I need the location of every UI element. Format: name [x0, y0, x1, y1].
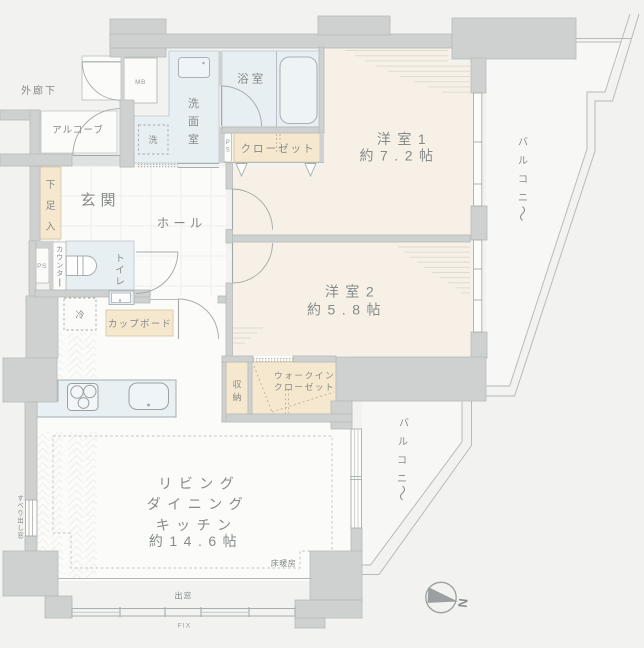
svg-text:S: S — [226, 148, 230, 154]
svg-text:し: し — [17, 524, 23, 532]
svg-text:ホール: ホール — [157, 217, 207, 231]
svg-text:PS: PS — [37, 263, 47, 270]
svg-text:玄関: 玄関 — [80, 192, 120, 209]
svg-text:出窓: 出窓 — [175, 591, 193, 601]
svg-text:納: 納 — [232, 392, 241, 403]
svg-text:クローゼット: クローゼット — [274, 381, 335, 392]
svg-text:洗: 洗 — [188, 97, 199, 110]
svg-text:下: 下 — [46, 180, 56, 191]
svg-text:約14.6帖: 約14.6帖 — [149, 533, 243, 549]
svg-text:面: 面 — [188, 116, 199, 128]
svg-text:ウ: ウ — [56, 254, 63, 262]
svg-text:洋室2: 洋室2 — [325, 284, 380, 300]
svg-text:MB: MB — [135, 79, 146, 86]
svg-text:ウォークイン: ウォークイン — [274, 371, 335, 381]
svg-text:バ: バ — [399, 418, 409, 430]
svg-text:キッチン: キッチン — [156, 517, 238, 533]
svg-text:浴室: 浴室 — [237, 72, 266, 86]
svg-text:約7.2帖: 約7.2帖 — [360, 148, 440, 164]
svg-text:P: P — [226, 140, 230, 146]
svg-text:洋室1: 洋室1 — [377, 131, 432, 147]
svg-text:外廊下: 外廊下 — [21, 84, 57, 97]
svg-text:室: 室 — [188, 132, 199, 146]
svg-text:コ: コ — [518, 175, 528, 186]
svg-text:イ: イ — [115, 265, 125, 276]
svg-text:べ: べ — [17, 502, 23, 510]
svg-text:バ: バ — [518, 137, 528, 149]
svg-text:FIX: FIX — [178, 623, 192, 630]
svg-text:足: 足 — [46, 200, 56, 212]
svg-text:床暖房: 床暖房 — [271, 558, 297, 568]
svg-text:コ: コ — [397, 456, 407, 467]
svg-text:ニ: ニ — [518, 193, 528, 204]
svg-text:N: N — [455, 598, 470, 609]
svg-text:カップボード: カップボード — [108, 319, 172, 330]
svg-text:ン: ン — [56, 263, 63, 270]
svg-text:ル: ル — [398, 437, 408, 448]
svg-text:タ: タ — [56, 269, 63, 278]
svg-text:出: 出 — [17, 516, 23, 525]
svg-text:洗: 洗 — [148, 134, 157, 145]
svg-text:クローゼット: クローゼット — [241, 143, 316, 155]
svg-text:ダイニング: ダイニング — [147, 496, 250, 512]
svg-text:ル: ル — [518, 156, 528, 167]
svg-text:カ: カ — [56, 246, 63, 254]
svg-text:窓: 窓 — [17, 531, 23, 540]
svg-text:冷: 冷 — [75, 309, 84, 320]
svg-text:リビング: リビング — [158, 476, 240, 492]
svg-text:ト: ト — [115, 254, 125, 265]
svg-text:収: 収 — [232, 379, 241, 390]
svg-text:り: り — [17, 509, 23, 517]
svg-text:約5.8帖: 約5.8帖 — [307, 302, 387, 318]
svg-text:ニ: ニ — [397, 474, 407, 485]
svg-text:す: す — [17, 494, 23, 502]
svg-text:レ: レ — [115, 277, 125, 288]
svg-text:アルコーブ: アルコーブ — [52, 124, 104, 136]
svg-text:入: 入 — [46, 222, 56, 233]
